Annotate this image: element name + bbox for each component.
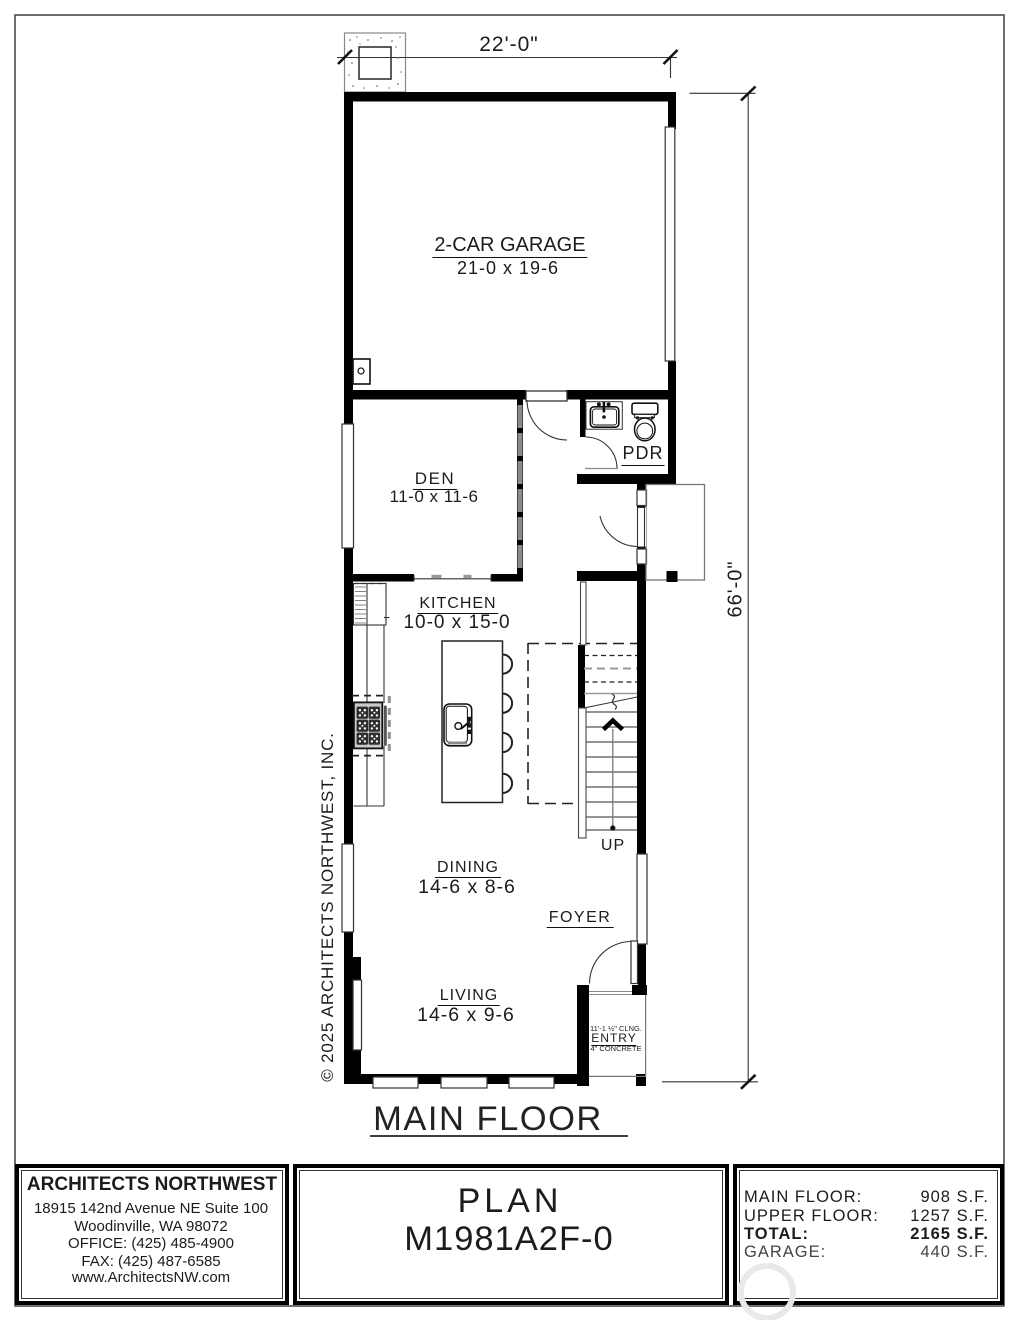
svg-text:© 2025 ARCHITECTS NORTHWEST, I: © 2025 ARCHITECTS NORTHWEST, INC.	[318, 732, 337, 1081]
svg-text:66'-0": 66'-0"	[725, 561, 747, 618]
